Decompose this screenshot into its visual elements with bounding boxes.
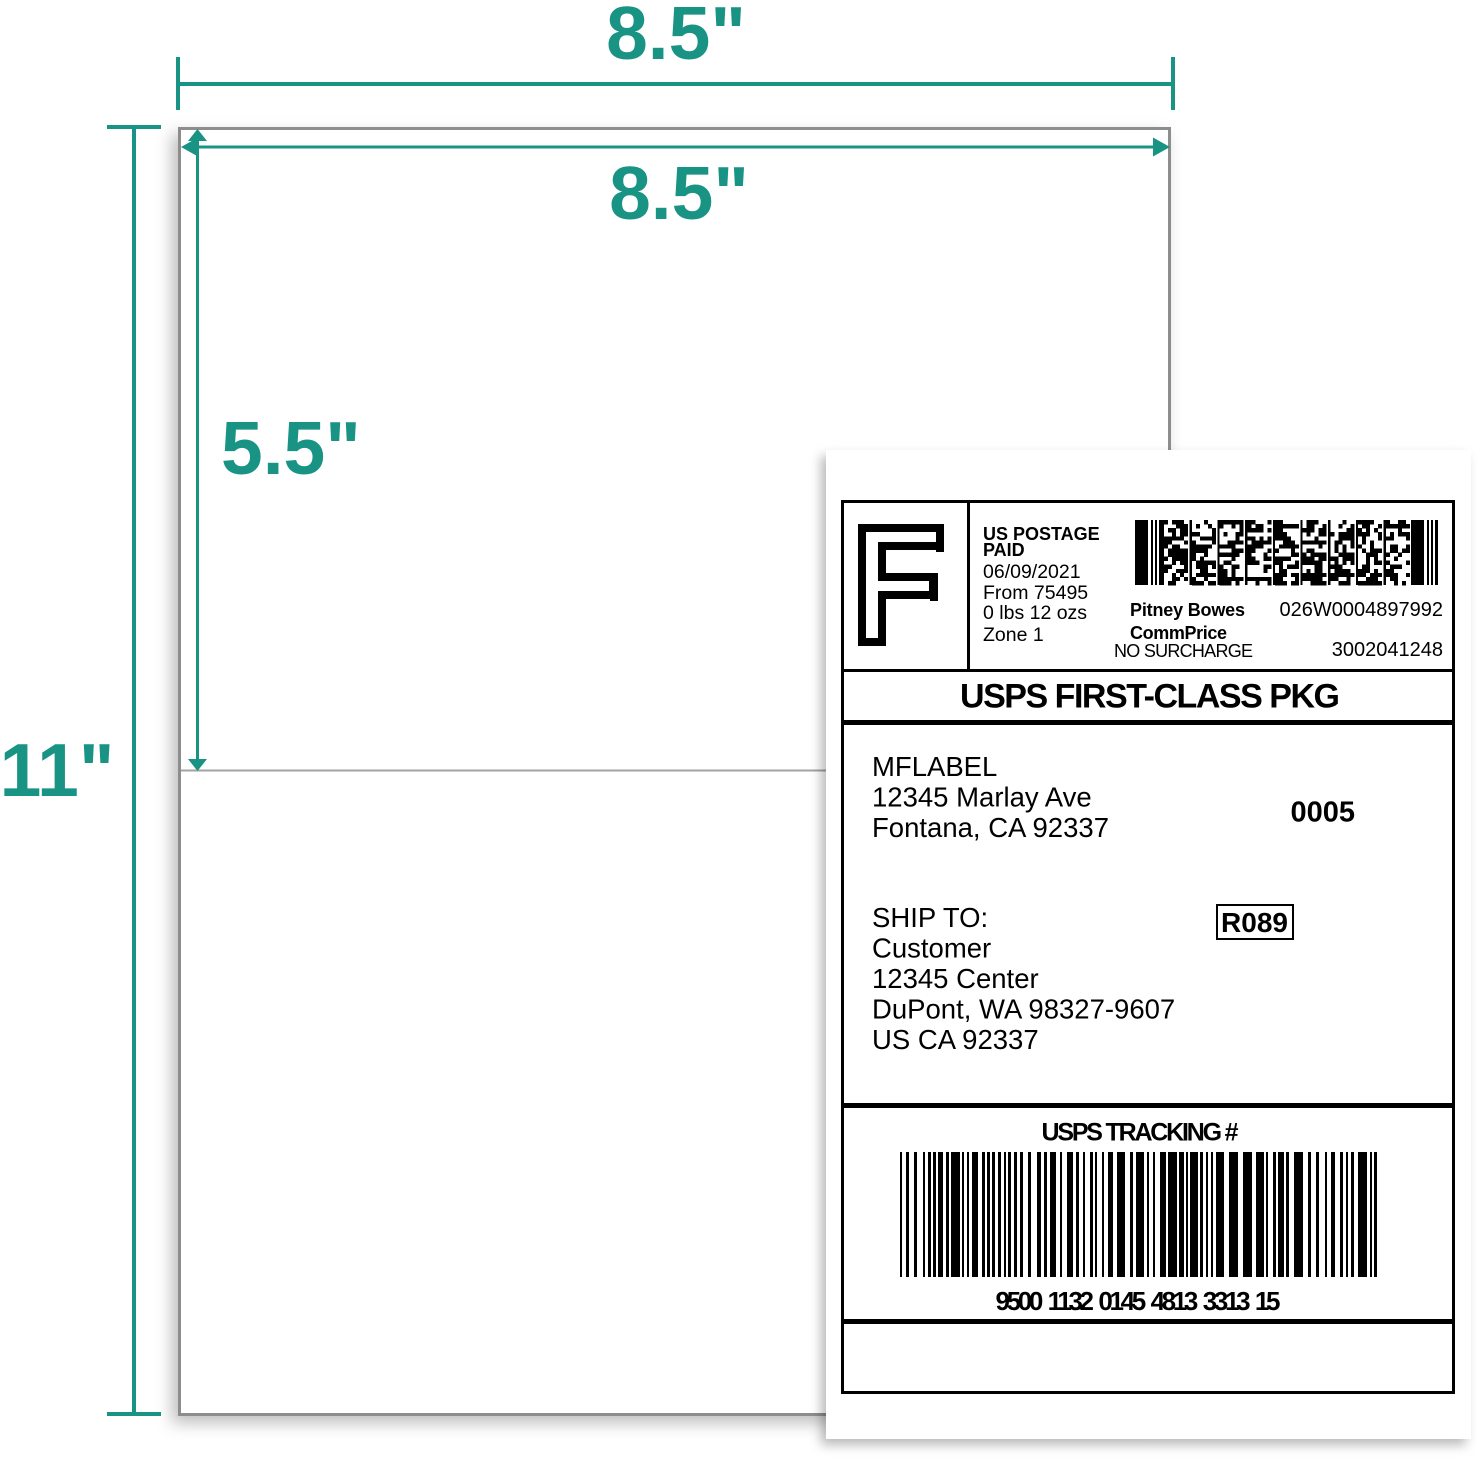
svg-text:DuPont, WA 98327-9607: DuPont, WA 98327-9607 [872,994,1175,1025]
svg-text:3002041248: 3002041248 [1332,639,1443,661]
svg-text:From 75495: From 75495 [983,582,1088,604]
svg-text:Pitney Bowes: Pitney Bowes [1130,600,1245,620]
svg-text:MFLABEL: MFLABEL [872,751,997,782]
svg-text:USPS FIRST-CLASS PKG: USPS FIRST-CLASS PKG [960,678,1340,716]
svg-text:026W0004897992: 026W0004897992 [1280,599,1443,621]
svg-text:0005: 0005 [1290,797,1355,829]
svg-text:06/09/2021: 06/09/2021 [983,561,1081,583]
svg-text:5.5": 5.5" [221,406,361,490]
svg-text:12345 Center: 12345 Center [872,963,1039,994]
svg-text:12345 Marlay Ave: 12345 Marlay Ave [872,782,1092,813]
svg-text:Zone 1: Zone 1 [983,624,1044,646]
svg-text:8.5": 8.5" [606,0,746,75]
svg-text:CommPrice: CommPrice [1130,623,1227,643]
svg-text:R089: R089 [1221,907,1288,938]
svg-text:SHIP TO:: SHIP TO: [872,902,988,933]
svg-text:11": 11" [0,728,114,812]
svg-text:9500 1132 0145 4813 3313: 9500 1132 0145 4813 3313 15 [996,1286,1281,1316]
svg-text:US CA 92337: US CA 92337 [872,1024,1039,1055]
svg-text:Fontana, CA 92337: Fontana, CA 92337 [872,812,1109,843]
svg-text:USPS TRACKING #: USPS TRACKING # [1042,1119,1239,1147]
svg-text:NO SURCHARGE: NO SURCHARGE [1114,641,1253,661]
svg-text:0 lbs 12 ozs: 0 lbs 12 ozs [983,602,1087,624]
svg-text:Customer: Customer [872,933,991,964]
svg-text:PAID: PAID [983,540,1025,560]
svg-text:8.5": 8.5" [609,151,749,235]
